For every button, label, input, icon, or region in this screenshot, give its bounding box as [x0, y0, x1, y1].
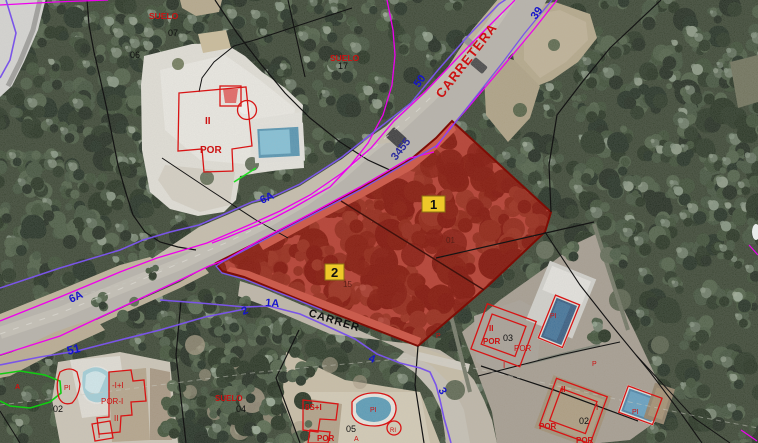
- svg-text:POR: POR: [200, 145, 222, 156]
- svg-text:A: A: [354, 436, 359, 443]
- svg-text:05: 05: [346, 424, 356, 434]
- svg-text:RI: RI: [390, 428, 396, 434]
- svg-text:SUELO: SUELO: [215, 394, 243, 403]
- svg-text:P: P: [436, 333, 441, 340]
- svg-text:15: 15: [343, 280, 352, 289]
- svg-text:01: 01: [446, 236, 455, 245]
- svg-text:2: 2: [331, 265, 338, 280]
- svg-text:1: 1: [430, 197, 437, 212]
- svg-text:POR: POR: [514, 344, 532, 353]
- svg-text:1A: 1A: [265, 297, 280, 310]
- svg-text:8S+I: 8S+I: [305, 403, 322, 412]
- svg-text:07: 07: [168, 28, 178, 38]
- svg-text:06: 06: [130, 50, 140, 60]
- svg-text:POR: POR: [576, 436, 594, 443]
- svg-text:II: II: [561, 385, 565, 394]
- svg-text:02: 02: [579, 416, 589, 426]
- svg-text:POR: POR: [539, 422, 557, 431]
- svg-text:04: 04: [236, 404, 246, 414]
- svg-text:PI: PI: [64, 385, 71, 392]
- svg-text:I: I: [98, 431, 100, 440]
- svg-text:A: A: [15, 384, 20, 391]
- svg-text:II: II: [489, 324, 493, 333]
- svg-text:POR: POR: [317, 434, 335, 443]
- svg-text:I: I: [503, 361, 505, 370]
- svg-text:17: 17: [338, 61, 348, 71]
- svg-text:POR-I: POR-I: [101, 397, 123, 406]
- svg-text:II: II: [114, 414, 118, 423]
- svg-text:SUELO: SUELO: [149, 11, 179, 21]
- svg-text:-I+I: -I+I: [112, 381, 124, 390]
- svg-text:02: 02: [53, 404, 63, 414]
- svg-text:PI: PI: [370, 407, 377, 414]
- svg-text:03: 03: [503, 333, 513, 343]
- svg-text:I: I: [596, 403, 598, 412]
- svg-text:II: II: [205, 116, 211, 127]
- svg-text:POR: POR: [483, 337, 501, 346]
- svg-text:PI: PI: [550, 313, 557, 320]
- svg-text:PI: PI: [632, 409, 639, 416]
- svg-text:P: P: [592, 361, 597, 368]
